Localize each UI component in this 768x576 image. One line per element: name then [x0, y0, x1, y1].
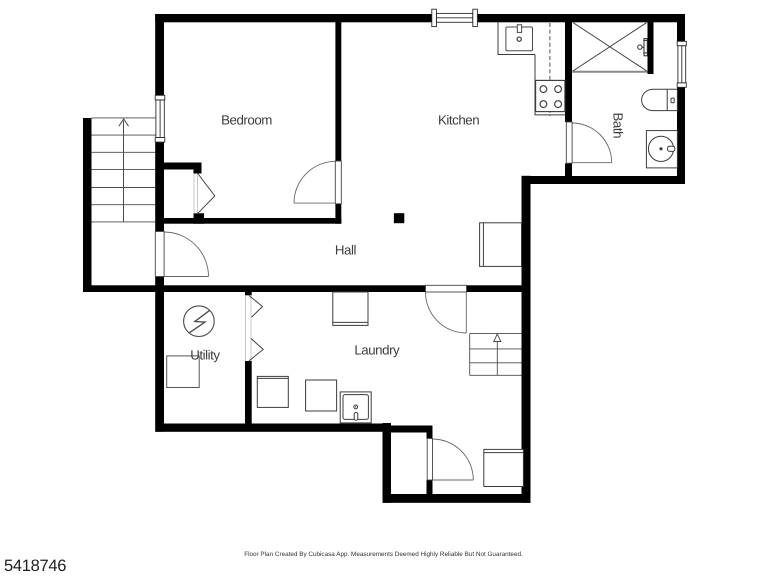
svg-text:Hall: Hall [335, 243, 357, 258]
svg-text:Utility: Utility [190, 348, 220, 363]
svg-text:5418746: 5418746 [4, 557, 66, 575]
svg-text:Bath: Bath [610, 113, 625, 139]
svg-text:Laundry: Laundry [354, 343, 400, 358]
svg-text:Bedroom: Bedroom [221, 113, 272, 128]
svg-text:Kitchen: Kitchen [438, 113, 479, 128]
svg-text:Floor Plan Created By Cubicasa: Floor Plan Created By Cubicasa App. Meas… [244, 551, 523, 558]
